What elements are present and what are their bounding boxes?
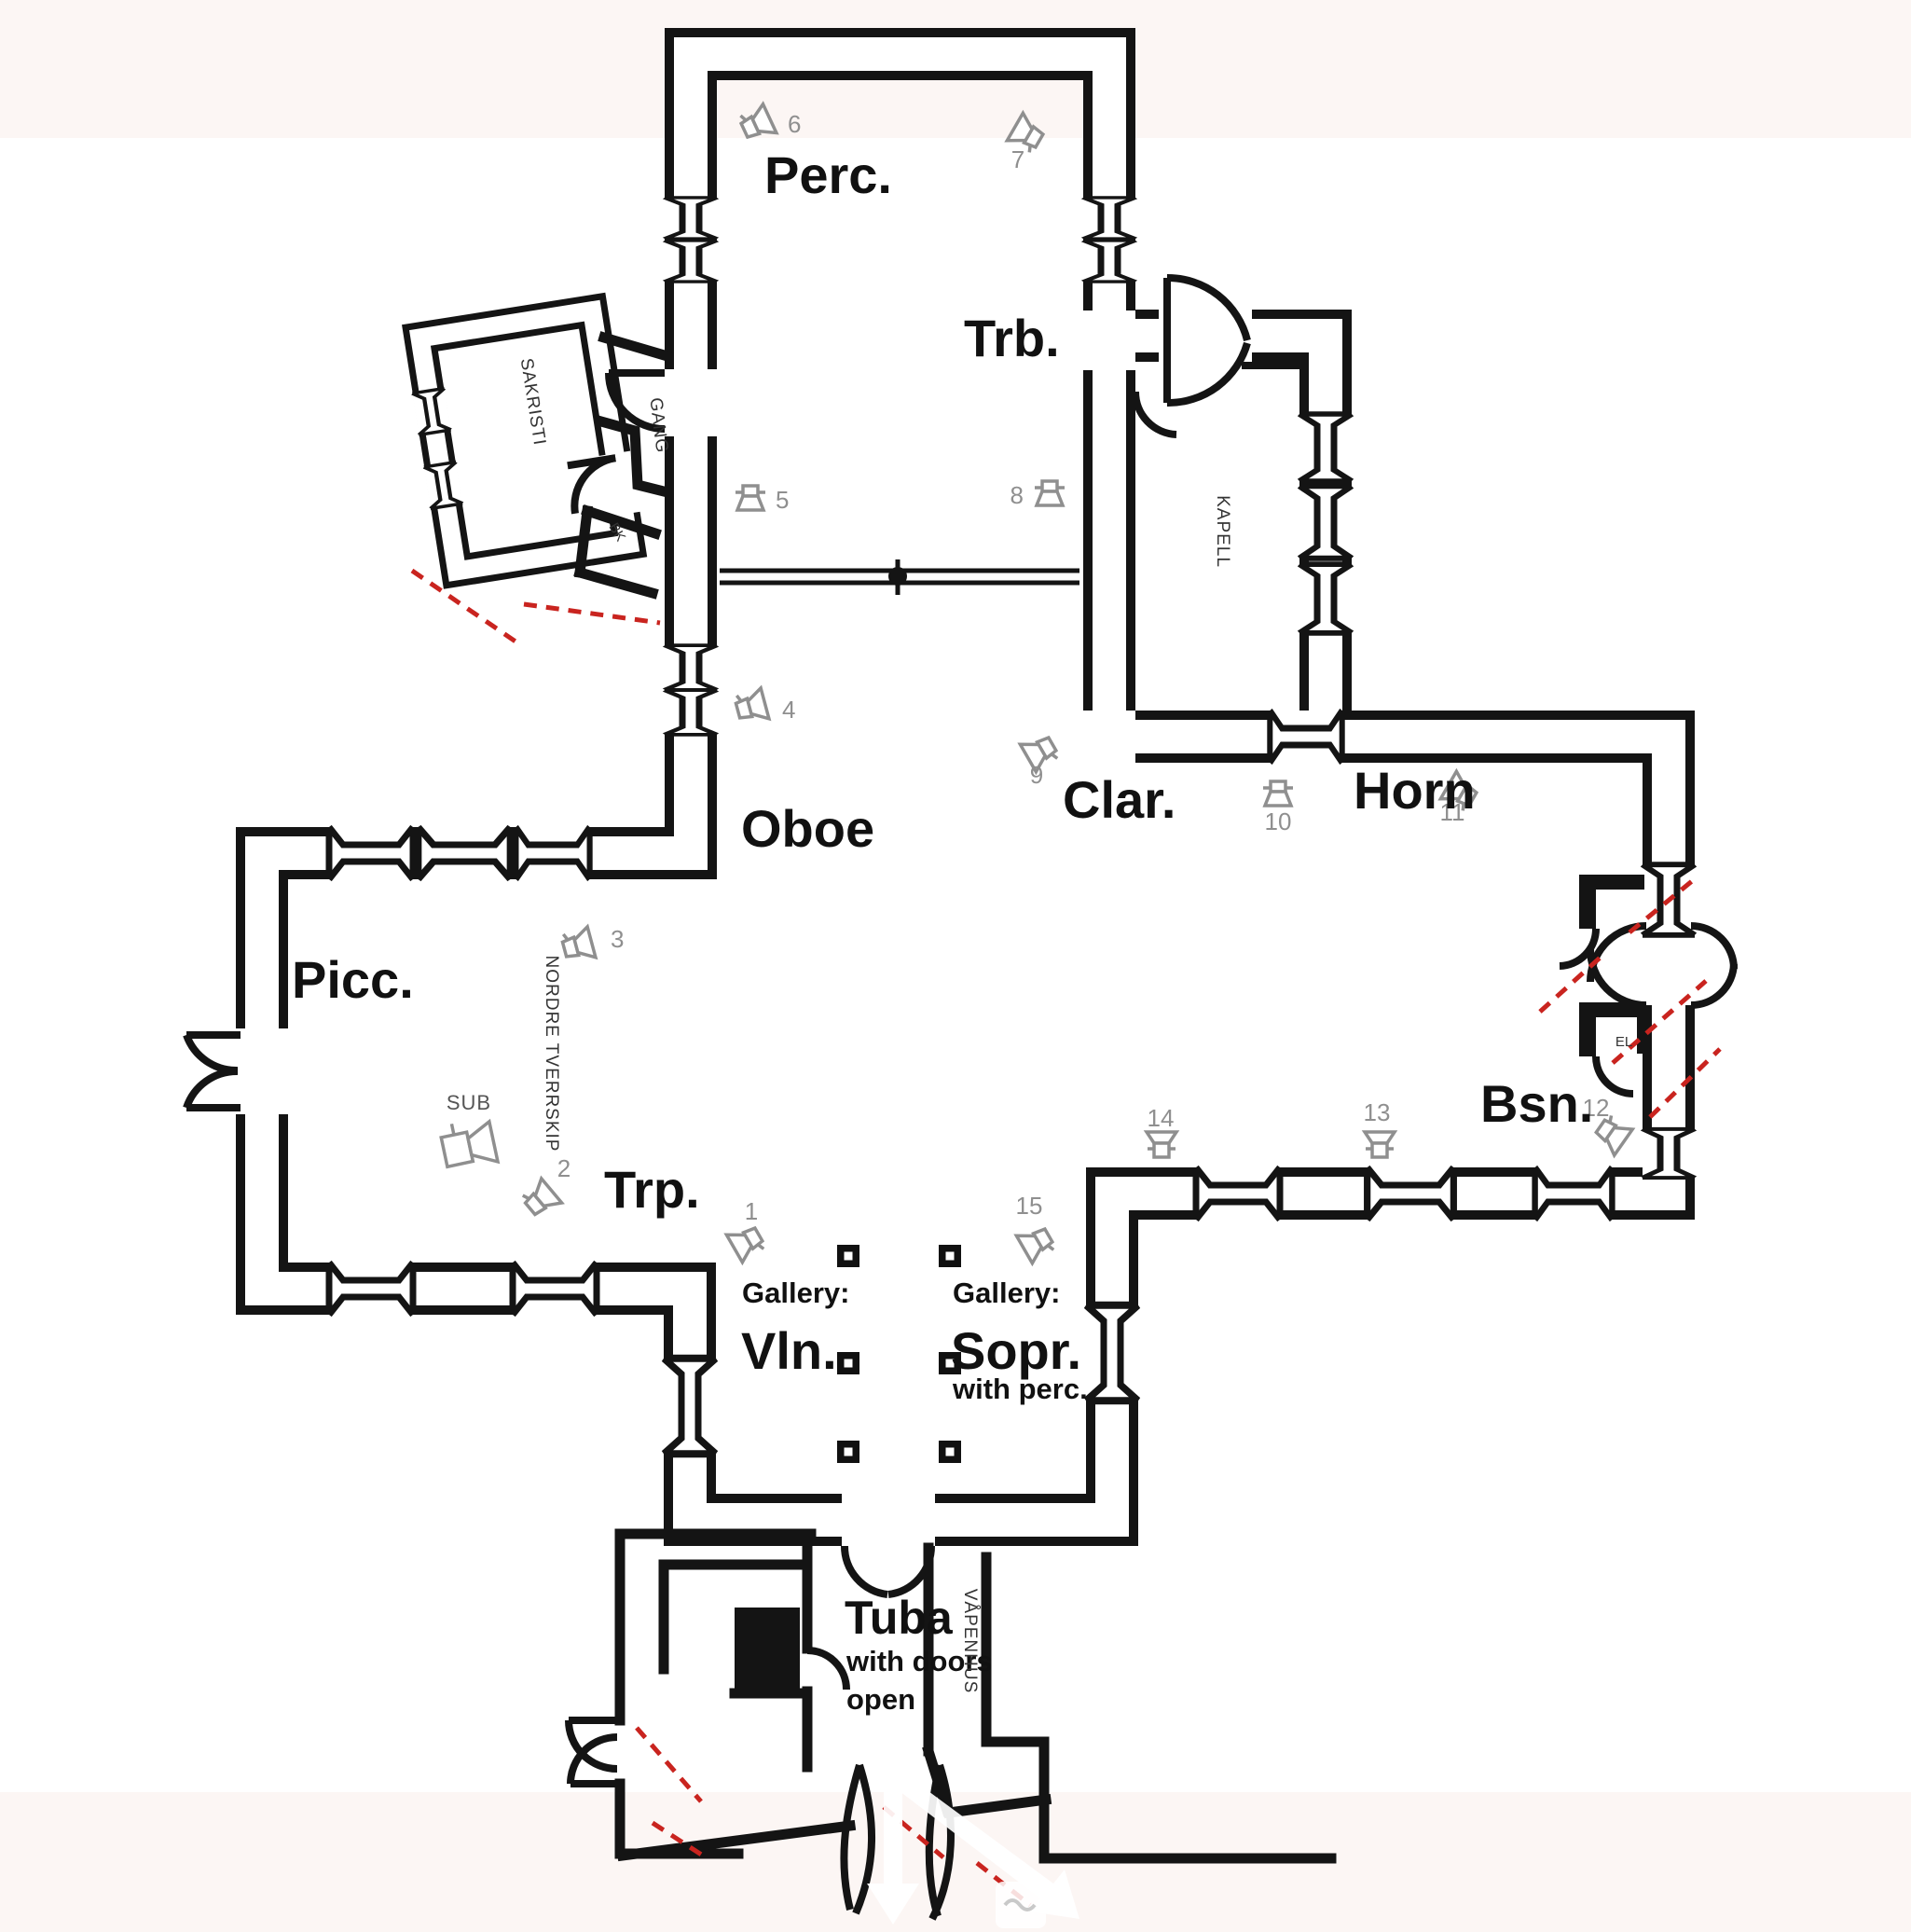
speaker-icons	[439, 104, 1632, 1263]
label-open: open	[846, 1683, 915, 1716]
gallery-pillars	[837, 1245, 961, 1463]
chancel-step	[720, 559, 1079, 595]
window-opening	[665, 645, 717, 690]
pillar	[939, 1245, 961, 1267]
window-opening	[1643, 1129, 1695, 1178]
room-sakristi: SAKRISTI	[516, 357, 550, 448]
speaker-number-13: 13	[1364, 1098, 1391, 1126]
speaker-icon-2	[520, 1179, 562, 1221]
church-floor-plan: 1 2 3 4 5 6 7 8 9 10 11 12 13 14 15 SUB …	[0, 0, 1911, 1932]
floor-plan-svg: 1 2 3 4 5 6 7 8 9 10 11 12 13 14 15 SUB …	[0, 0, 1911, 1932]
window-opening	[1270, 711, 1341, 763]
speaker-number-8: 8	[1010, 481, 1024, 509]
window-opening	[424, 462, 462, 509]
label-tuba: Tuba	[845, 1592, 954, 1644]
room-vapenhus: VÅPENHUS	[960, 1589, 980, 1694]
window-opening	[1086, 1305, 1138, 1401]
stairs-block	[735, 1608, 800, 1690]
speaker-number-10: 10	[1265, 807, 1292, 835]
window-opening	[1083, 198, 1135, 239]
monitor-icon-5	[736, 486, 765, 510]
sub-label: SUB	[447, 1091, 491, 1114]
monitor-icon-8	[1035, 481, 1065, 505]
window-opening	[1196, 1167, 1280, 1220]
speaker-number-4: 4	[782, 696, 795, 724]
window-opening	[665, 241, 717, 282]
room-nordre-tverrskip: NORDRE TVERRSKIP	[542, 956, 561, 1152]
speaker-number-1: 1	[745, 1197, 758, 1225]
speaker-number-5: 5	[776, 486, 789, 514]
label-trombone: Trb.	[964, 309, 1060, 367]
speaker-icon-15	[1016, 1221, 1056, 1263]
speaker-number-3: 3	[611, 925, 624, 953]
subwoofer-icon	[439, 1116, 498, 1172]
window-opening	[665, 198, 717, 239]
label-oboe: Oboe	[741, 799, 874, 858]
instrument-labels: Perc. Trb. Oboe Clar. Horn Picc. Trp. Bs…	[292, 145, 1593, 1716]
label-soprano: Sopr.	[951, 1321, 1081, 1380]
label-gallery-left: Gallery:	[742, 1276, 849, 1309]
label-with-perc: with perc.	[952, 1373, 1088, 1405]
speaker-icon-4	[734, 688, 769, 726]
window-opening	[1299, 564, 1352, 633]
label-violin: Vln.	[741, 1321, 837, 1380]
speaker-number-6: 6	[788, 110, 801, 138]
window-opening	[1535, 1167, 1613, 1220]
window-opening	[1299, 414, 1352, 481]
ceiling-speaker-icon-13	[1365, 1132, 1395, 1157]
window-opening	[412, 389, 450, 435]
window-opening	[1299, 486, 1352, 558]
pillar	[837, 1245, 859, 1267]
room-el: EL	[1615, 1034, 1632, 1050]
speaker-number-15: 15	[1016, 1192, 1043, 1220]
label-piccolo: Picc.	[292, 950, 414, 1009]
label-gallery-right: Gallery:	[953, 1276, 1060, 1309]
pillar	[939, 1441, 961, 1463]
window-opening	[329, 827, 413, 879]
label-clarinet: Clar.	[1063, 770, 1175, 829]
monitor-icon-10	[1263, 781, 1293, 806]
window-opening	[513, 1263, 597, 1315]
window-opening	[1083, 241, 1135, 282]
window-opening	[664, 1359, 716, 1455]
speaker-numbers: 1 2 3 4 5 6 7 8 9 10 11 12 13 14 15 SUB	[447, 110, 1610, 1225]
speaker-number-14: 14	[1148, 1104, 1175, 1132]
ceiling-speaker-icon-14	[1147, 1132, 1176, 1157]
window-opening	[419, 827, 511, 879]
speaker-number-2: 2	[557, 1154, 571, 1182]
speaker-number-7: 7	[1011, 145, 1024, 173]
label-horn: Horn	[1354, 761, 1476, 820]
pillar	[837, 1441, 859, 1463]
speaker-icon-3	[560, 927, 596, 965]
label-percussion: Perc.	[764, 145, 892, 204]
pillar	[837, 1352, 859, 1374]
label-bassoon: Bsn.	[1480, 1074, 1593, 1133]
speaker-number-9: 9	[1030, 761, 1043, 789]
label-trumpet: Trp.	[604, 1160, 700, 1219]
speaker-icon-1	[726, 1221, 766, 1262]
room-kapell: KAPELL	[1213, 495, 1232, 568]
window-opening	[516, 827, 589, 879]
window-opening	[1368, 1167, 1454, 1220]
window-opening	[329, 1263, 413, 1315]
window-opening	[665, 690, 717, 735]
